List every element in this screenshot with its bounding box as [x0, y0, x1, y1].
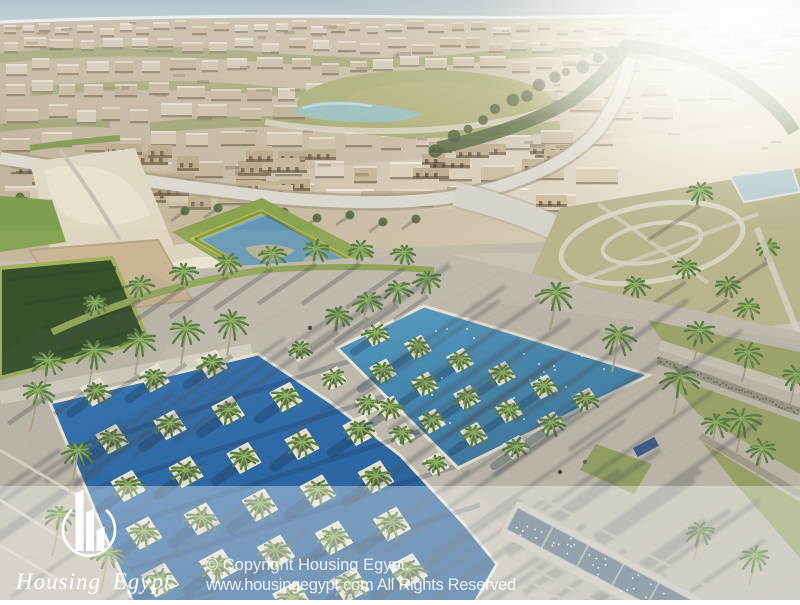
- svg-text:www.housingegypt.com All Right: www.housingegypt.com All Rights Reserved: [205, 576, 516, 594]
- svg-text:Housing Egypt: Housing Egypt: [15, 569, 171, 594]
- svg-text:© Copyright Housing Egypt.: © Copyright Housing Egypt.: [206, 556, 410, 574]
